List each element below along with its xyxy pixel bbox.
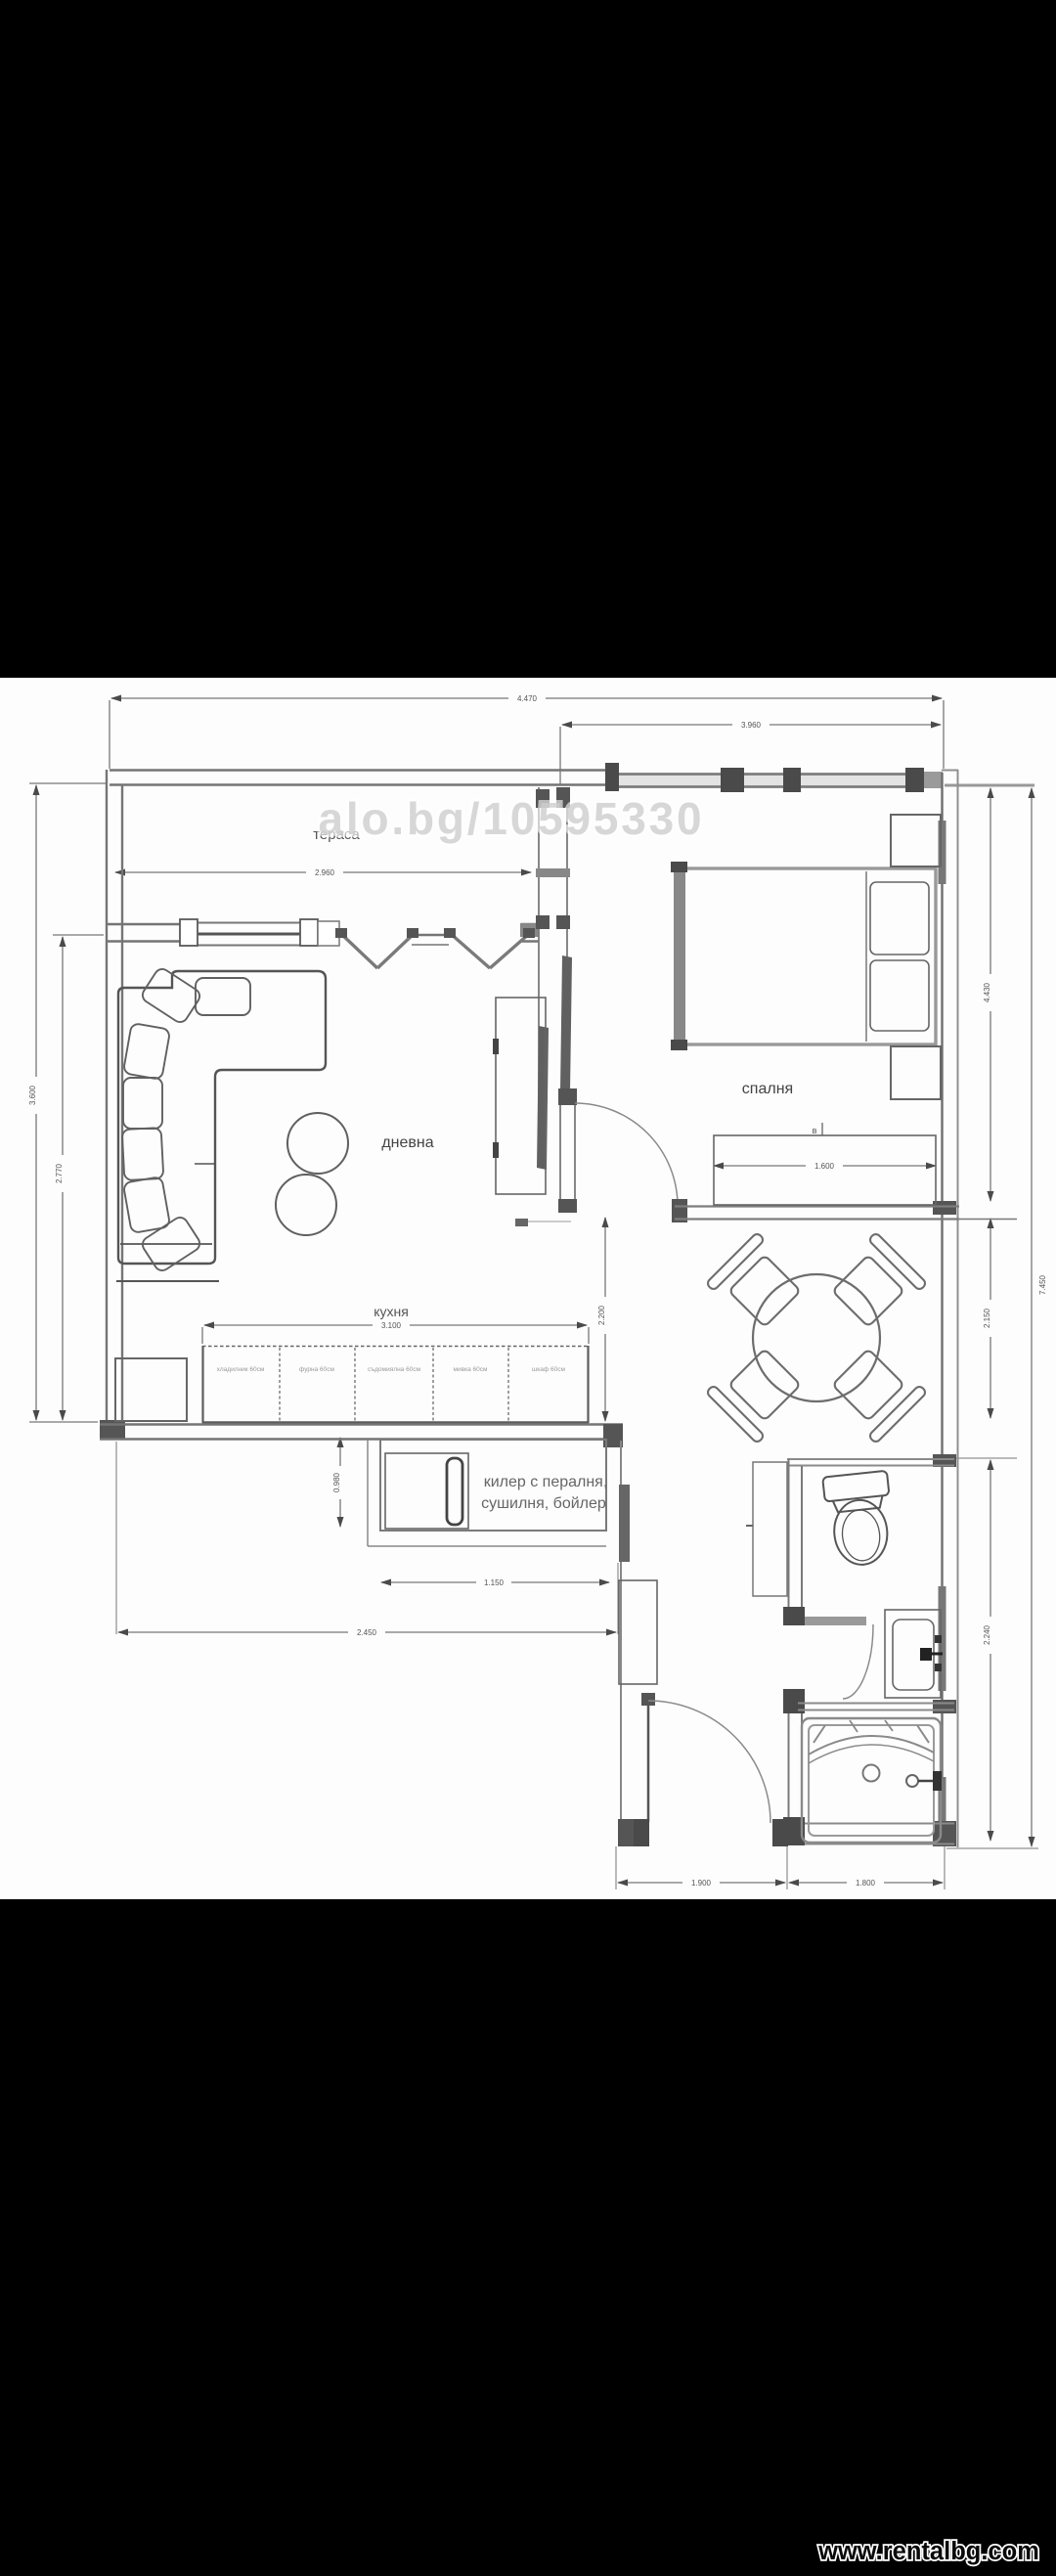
svg-text:в: в	[813, 1126, 817, 1135]
svg-text:7.450: 7.450	[1038, 1274, 1047, 1295]
svg-text:4.470: 4.470	[517, 694, 538, 703]
svg-text:2.240: 2.240	[983, 1624, 991, 1645]
svg-text:2.450: 2.450	[357, 1628, 377, 1637]
svg-text:фурна 60см: фурна 60см	[299, 1366, 335, 1373]
svg-text:сушилня, бойлер: сушилня, бойлер	[481, 1495, 606, 1512]
svg-text:мивка 60см: мивка 60см	[454, 1366, 488, 1373]
svg-text:1.800: 1.800	[856, 1879, 876, 1888]
svg-text:2.150: 2.150	[983, 1308, 991, 1328]
svg-text:3.960: 3.960	[741, 721, 762, 730]
svg-text:2.960: 2.960	[315, 868, 335, 877]
svg-text:4.430: 4.430	[983, 982, 991, 1002]
svg-text:1.900: 1.900	[691, 1879, 712, 1888]
svg-text:alo.bg/10595330: alo.bg/10595330	[319, 793, 705, 844]
svg-text:0.980: 0.980	[332, 1472, 341, 1492]
svg-text:1.150: 1.150	[484, 1578, 505, 1587]
svg-text:дневна: дневна	[381, 1134, 433, 1151]
svg-text:кухня: кухня	[374, 1304, 409, 1319]
svg-text:съдомиялна 60см: съдомиялна 60см	[368, 1366, 421, 1373]
svg-text:2.200: 2.200	[597, 1305, 606, 1325]
svg-text:шкаф 60см: шкаф 60см	[532, 1366, 565, 1373]
svg-text:2.770: 2.770	[55, 1163, 64, 1183]
svg-text:3.100: 3.100	[381, 1321, 402, 1330]
svg-text:3.600: 3.600	[28, 1085, 37, 1105]
svg-text:хладилник 60см: хладилник 60см	[217, 1366, 265, 1373]
svg-text:1.600: 1.600	[814, 1162, 835, 1171]
svg-text:килер с пералня,: килер с пералня,	[484, 1474, 608, 1490]
svg-text:спалня: спалня	[742, 1081, 793, 1097]
svg-text:www.rentalbg.com: www.rentalbg.com	[817, 2538, 1039, 2565]
